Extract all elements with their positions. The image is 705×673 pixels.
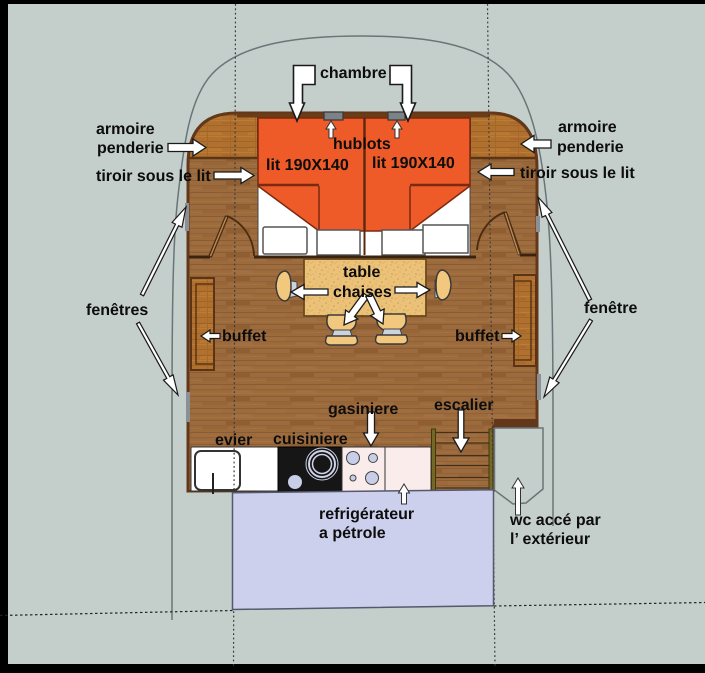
svg-text:escalier: escalier (434, 397, 494, 414)
svg-text:chambre: chambre (320, 65, 387, 82)
svg-text:l’ extérieur: l’ extérieur (510, 531, 590, 548)
svg-text:tiroir sous le lit: tiroir sous le lit (520, 165, 635, 182)
svg-text:lit 190X140: lit 190X140 (372, 155, 455, 172)
svg-text:gasiniere: gasiniere (328, 401, 398, 418)
svg-text:fenêtres: fenêtres (86, 302, 148, 319)
svg-text:lit 190X140: lit 190X140 (266, 157, 349, 174)
svg-text:penderie: penderie (97, 140, 164, 157)
svg-text:hublots: hublots (333, 136, 391, 153)
svg-text:chaises: chaises (333, 284, 392, 301)
svg-text:a pétrole: a pétrole (319, 525, 386, 542)
svg-text:refrigérateur: refrigérateur (319, 506, 414, 523)
svg-text:penderie: penderie (557, 139, 624, 156)
svg-text:evier: evier (215, 432, 252, 449)
svg-text:table: table (343, 264, 380, 281)
svg-text:cuisiniere: cuisiniere (273, 431, 348, 448)
svg-text:fenêtre: fenêtre (584, 300, 637, 317)
svg-text:wc accé par: wc accé par (509, 512, 601, 529)
svg-text:buffet: buffet (455, 328, 500, 345)
svg-text:tiroir sous le lit: tiroir sous le lit (96, 168, 211, 185)
svg-text:armoire: armoire (558, 119, 617, 136)
svg-text:armoire: armoire (96, 121, 155, 138)
svg-text:buffet: buffet (222, 328, 267, 345)
